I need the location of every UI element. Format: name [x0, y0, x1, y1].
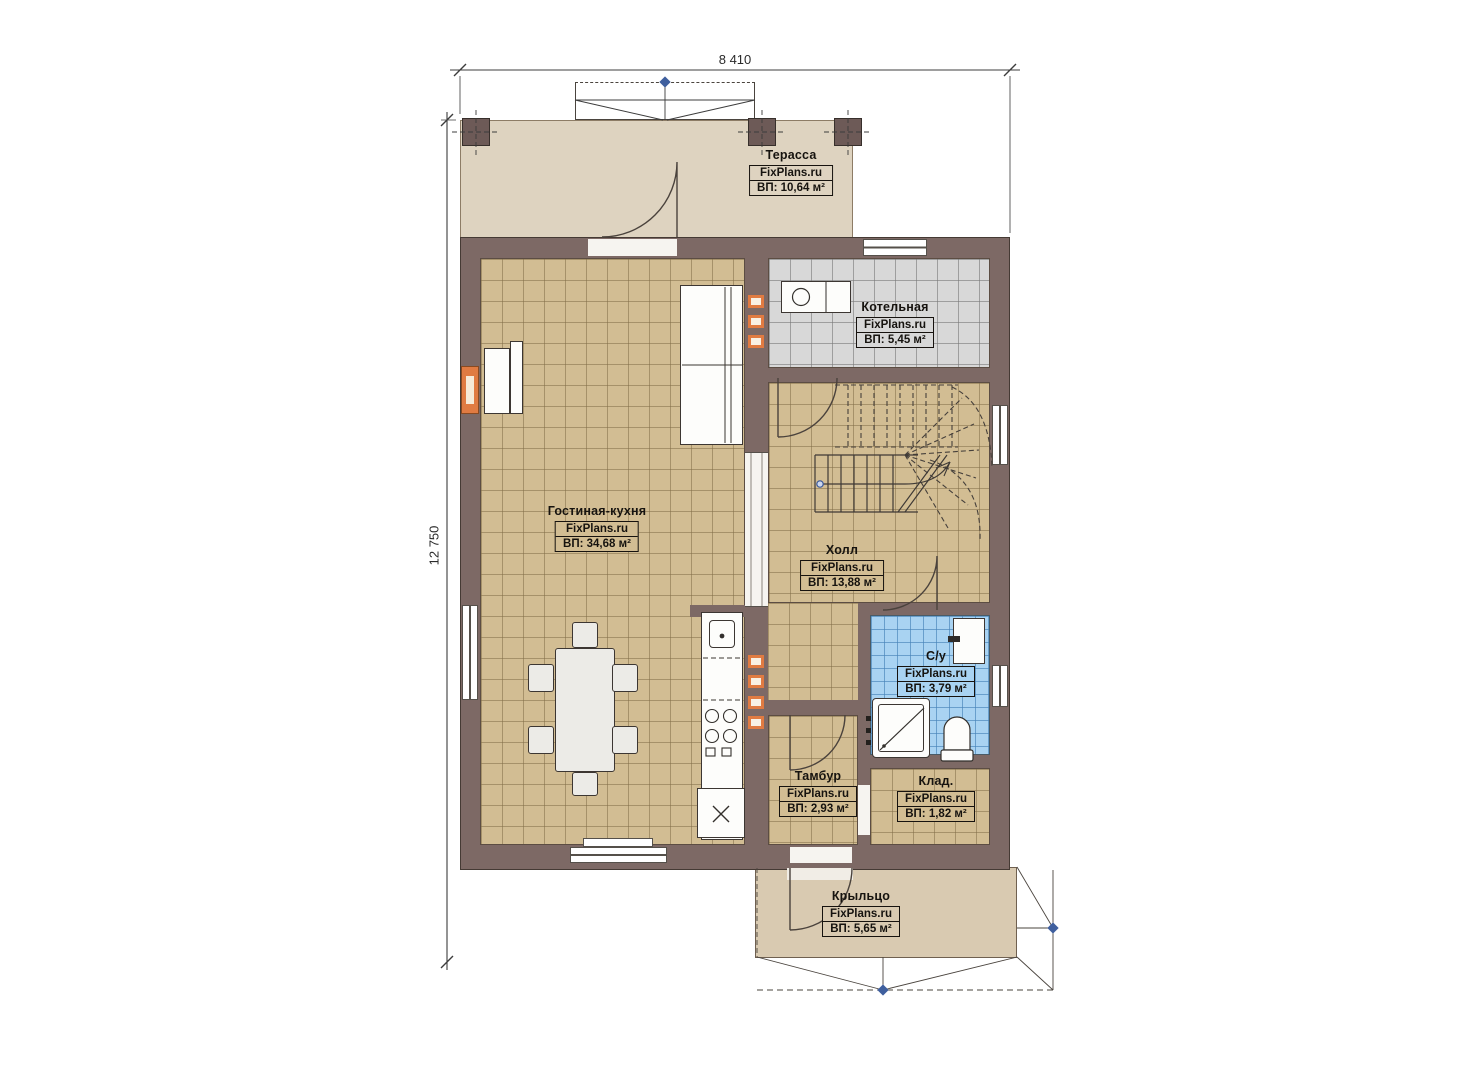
floor-plan-canvas: 8 410 12 750 Терасса FixPlans.ru ВП: 10,… [0, 0, 1473, 1080]
terrace-pillar [462, 118, 490, 146]
radiator [583, 838, 653, 847]
room-title: Тамбур [779, 769, 857, 783]
fireplace-flue-core [466, 376, 474, 404]
tv-console [484, 348, 510, 414]
chair [612, 726, 638, 754]
room-title: Клад. [897, 774, 975, 788]
wall-bath-top-right [935, 603, 990, 615]
vent-shaft [748, 315, 764, 328]
wall-bath-west-stub [858, 835, 870, 845]
room-area: ВП: 34,68 м² [556, 536, 638, 551]
room-title: Гостиная-кухня [548, 504, 647, 518]
vent-shaft [748, 655, 764, 668]
terrace-pillar [748, 118, 776, 146]
storage-door-opening [858, 785, 870, 835]
chair [572, 622, 598, 648]
room-area: ВП: 5,65 м² [823, 921, 899, 936]
room-title: С/у [897, 649, 975, 663]
brand-label: FixPlans.ru [823, 907, 899, 921]
chair [572, 772, 598, 796]
room-title: Терасса [749, 148, 833, 162]
brand-label: FixPlans.ru [780, 787, 856, 801]
boiler-window [863, 239, 927, 256]
room-info-box: FixPlans.ru ВП: 10,64 м² [749, 165, 833, 196]
wall-vestibule-top-left [768, 700, 790, 715]
room-info-box: FixPlans.ru ВП: 13,88 м² [800, 560, 884, 591]
hall-floor-strip [768, 603, 858, 700]
dining-table [555, 648, 615, 772]
living-hall-passage [745, 452, 768, 607]
chair [528, 726, 554, 754]
boiler-unit [781, 281, 851, 313]
brand-label: FixPlans.ru [857, 318, 933, 332]
room-info-box: FixPlans.ru ВП: 34,68 м² [555, 521, 639, 552]
chair [528, 664, 554, 692]
room-title: Холл [800, 543, 884, 557]
living-window-west [462, 605, 478, 700]
room-label-terrace: Терасса FixPlans.ru ВП: 10,64 м² [749, 148, 833, 196]
room-label-porch: Крыльцо FixPlans.ru ВП: 5,65 м² [822, 889, 900, 937]
brand-label: FixPlans.ru [556, 522, 638, 536]
wall-boiler-hall-right [838, 368, 990, 382]
room-info-box: FixPlans.ru ВП: 5,45 м² [856, 317, 934, 348]
brand-label: FixPlans.ru [801, 561, 883, 575]
vent-shaft [748, 696, 764, 709]
water-heater-handle [948, 636, 960, 642]
entrance-door-opening [790, 847, 852, 863]
dimension-width: 8 410 [719, 52, 752, 67]
terrace-door-opening [588, 239, 677, 256]
room-info-box: FixPlans.ru ВП: 3,79 м² [897, 666, 975, 697]
terrace-steps [575, 82, 755, 120]
room-info-box: FixPlans.ru ВП: 5,65 м² [822, 906, 900, 937]
room-label-boiler: Котельная FixPlans.ru ВП: 5,45 м² [856, 300, 934, 348]
wall-living-hall-upper [745, 258, 768, 452]
appliance-box [697, 788, 745, 838]
vent-shaft [748, 335, 764, 348]
room-label-storage: Клад. FixPlans.ru ВП: 1,82 м² [897, 774, 975, 822]
vent-shaft [748, 716, 764, 729]
room-label-hall: Холл FixPlans.ru ВП: 13,88 м² [800, 543, 884, 591]
room-info-box: FixPlans.ru ВП: 1,82 м² [897, 791, 975, 822]
terrace-pillar [834, 118, 862, 146]
shower-tray-inner [878, 704, 924, 752]
wall-vestibule-top-right [845, 700, 858, 715]
wall-bath-top-left [858, 603, 883, 615]
brand-label: FixPlans.ru [898, 792, 974, 806]
bath-window-east [992, 665, 1008, 707]
room-label-living-kitchen: Гостиная-кухня FixPlans.ru ВП: 34,68 м² [548, 504, 647, 552]
room-area: ВП: 1,82 м² [898, 806, 974, 821]
room-area: ВП: 13,88 м² [801, 575, 883, 590]
chair [612, 664, 638, 692]
room-area: ВП: 10,64 м² [750, 180, 832, 195]
dimension-height: 12 750 [426, 526, 441, 566]
room-area: ВП: 5,45 м² [857, 332, 933, 347]
tall-cabinet [680, 285, 743, 445]
brand-label: FixPlans.ru [898, 667, 974, 681]
tv-panel [510, 341, 523, 414]
entrance-threshold [787, 868, 853, 880]
vent-shaft [748, 295, 764, 308]
room-area: ВП: 2,93 м² [780, 801, 856, 816]
hall-window-east [992, 405, 1008, 465]
vent-shaft [748, 675, 764, 688]
room-info-box: FixPlans.ru ВП: 2,93 м² [779, 786, 857, 817]
brand-label: FixPlans.ru [750, 166, 832, 180]
room-area: ВП: 3,79 м² [898, 681, 974, 696]
wall-boiler-hall-left [768, 368, 778, 382]
kitchen-sink [709, 620, 735, 648]
living-window-south [570, 847, 667, 863]
room-title: Крыльцо [822, 889, 900, 903]
room-label-bathroom: С/у FixPlans.ru ВП: 3,79 м² [897, 649, 975, 697]
room-title: Котельная [856, 300, 934, 314]
room-label-vestibule: Тамбур FixPlans.ru ВП: 2,93 м² [779, 769, 857, 817]
